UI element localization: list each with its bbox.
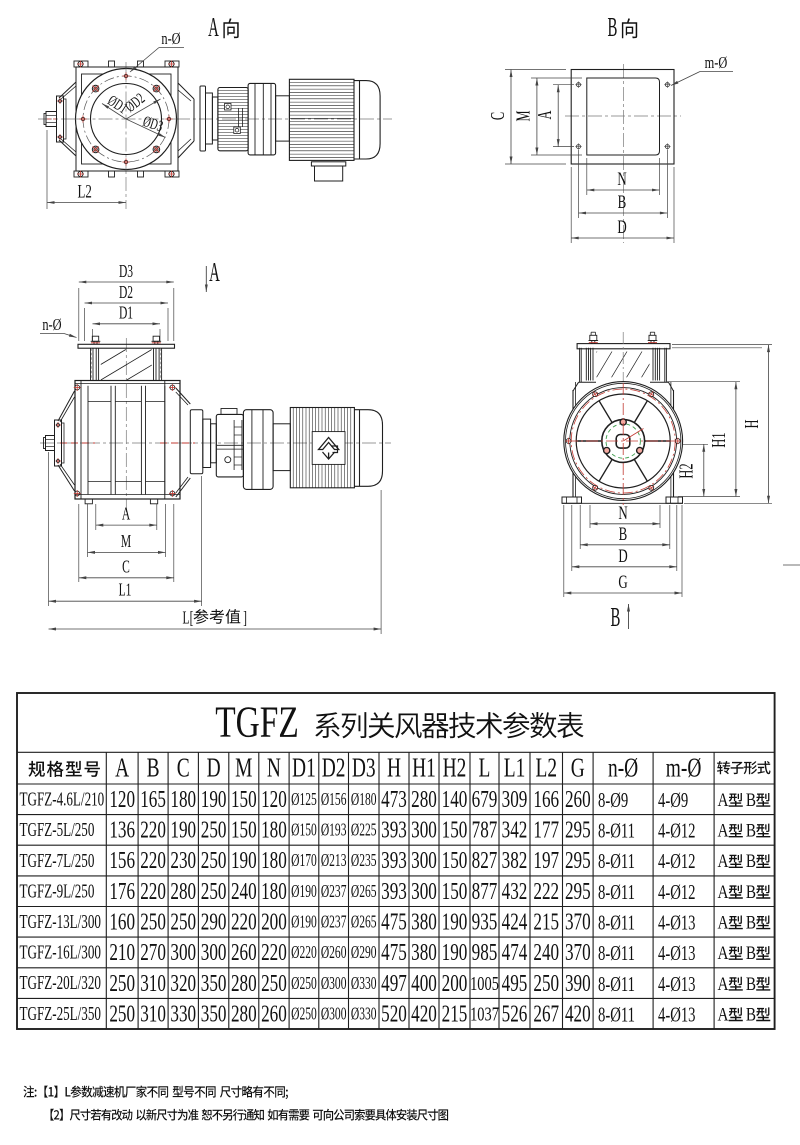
svg-text:B: B: [619, 523, 628, 544]
svg-text:200: 200: [261, 907, 287, 935]
svg-text:290: 290: [201, 907, 227, 935]
svg-text:Ø260: Ø260: [321, 944, 347, 963]
svg-text:N: N: [618, 502, 628, 523]
svg-text:]: ]: [243, 609, 247, 628]
svg-text:390: 390: [565, 969, 591, 997]
svg-text:250: 250: [201, 846, 227, 874]
svg-text:210: 210: [109, 938, 135, 966]
svg-text:Ø250: Ø250: [291, 975, 317, 994]
svg-text:935: 935: [472, 907, 498, 935]
svg-text:350: 350: [201, 999, 227, 1027]
svg-text:B: B: [608, 12, 618, 42]
svg-text:TGFZ-9L/250: TGFZ-9L/250: [19, 880, 94, 902]
svg-text:8-Ø9: 8-Ø9: [598, 788, 628, 811]
svg-text:250: 250: [109, 999, 135, 1027]
svg-text:H: H: [387, 754, 401, 784]
svg-text:Ø330: Ø330: [351, 1005, 377, 1024]
svg-text:679: 679: [472, 785, 498, 813]
svg-text:120: 120: [261, 785, 287, 813]
svg-text:8-Ø11: 8-Ø11: [598, 1003, 635, 1026]
svg-text:295: 295: [565, 877, 591, 905]
svg-text:300: 300: [411, 816, 437, 844]
svg-text:300: 300: [170, 938, 196, 966]
svg-text:D: D: [207, 754, 221, 784]
svg-text:380: 380: [411, 938, 437, 966]
svg-text:190: 190: [170, 816, 196, 844]
svg-text:370: 370: [565, 938, 591, 966]
svg-text:180: 180: [261, 877, 287, 905]
svg-text:N: N: [267, 754, 281, 784]
svg-text:8-Ø11: 8-Ø11: [598, 880, 635, 903]
svg-text:180: 180: [170, 785, 196, 813]
svg-text:n-Ø: n-Ø: [42, 316, 61, 334]
svg-text:Ø265: Ø265: [351, 913, 377, 932]
svg-text:120: 120: [109, 785, 135, 813]
svg-text:m-Ø: m-Ø: [666, 754, 702, 784]
svg-text:350: 350: [201, 969, 227, 997]
svg-text:D: D: [618, 545, 628, 566]
svg-text:474: 474: [502, 938, 528, 966]
svg-text:A: A: [208, 12, 219, 42]
svg-text:1005: 1005: [470, 971, 499, 994]
svg-text:250: 250: [201, 877, 227, 905]
svg-text:222: 222: [533, 877, 559, 905]
svg-text:270: 270: [140, 938, 166, 966]
svg-text:D1: D1: [119, 304, 133, 323]
svg-text:B: B: [147, 754, 160, 784]
svg-text:280: 280: [231, 969, 257, 997]
svg-text:Ø190: Ø190: [291, 913, 317, 932]
svg-text:M: M: [121, 533, 131, 552]
svg-text:526: 526: [502, 999, 528, 1027]
svg-text:250: 250: [201, 816, 227, 844]
svg-text:393: 393: [381, 846, 407, 874]
svg-text:150: 150: [231, 785, 257, 813]
svg-text:G: G: [618, 572, 628, 593]
svg-text:190: 190: [231, 846, 257, 874]
svg-text:393: 393: [381, 877, 407, 905]
svg-text:220: 220: [140, 877, 166, 905]
svg-text:382: 382: [502, 846, 528, 874]
svg-text:Ø330: Ø330: [351, 975, 377, 994]
svg-text:D3: D3: [352, 754, 376, 784]
svg-text:A: A: [122, 505, 131, 524]
svg-text:190: 190: [201, 785, 227, 813]
svg-text:190: 190: [442, 907, 468, 935]
svg-text:165: 165: [140, 785, 166, 813]
svg-text:4-Ø13: 4-Ø13: [658, 942, 696, 965]
svg-text:8-Ø11: 8-Ø11: [598, 911, 635, 934]
svg-text:380: 380: [411, 907, 437, 935]
svg-text:877: 877: [472, 877, 498, 905]
svg-text:432: 432: [502, 877, 528, 905]
svg-text:4-Ø13: 4-Ø13: [658, 911, 696, 934]
svg-text:Ø193: Ø193: [321, 821, 347, 840]
svg-text:370: 370: [565, 907, 591, 935]
svg-text:L2: L2: [535, 754, 557, 784]
svg-text:220: 220: [261, 938, 287, 966]
svg-text:4-Ø12: 4-Ø12: [658, 850, 696, 873]
svg-text:180: 180: [261, 816, 287, 844]
svg-text:330: 330: [170, 999, 196, 1027]
svg-text:280: 280: [170, 877, 196, 905]
svg-text:Ø250: Ø250: [291, 1005, 317, 1024]
svg-text:260: 260: [231, 938, 257, 966]
svg-text:B: B: [618, 192, 627, 213]
svg-text:Ø300: Ø300: [321, 1005, 347, 1024]
svg-text:Ø300: Ø300: [321, 975, 347, 994]
svg-text:TGFZ-5L/250: TGFZ-5L/250: [19, 818, 94, 840]
svg-text:250: 250: [170, 907, 196, 935]
svg-text:H2: H2: [443, 754, 467, 784]
svg-text:420: 420: [565, 999, 591, 1027]
svg-text:Ø180: Ø180: [351, 791, 377, 810]
svg-text:475: 475: [381, 938, 407, 966]
svg-text:4-Ø12: 4-Ø12: [658, 880, 696, 903]
svg-text:200: 200: [442, 969, 468, 997]
svg-text:8-Ø11: 8-Ø11: [598, 942, 635, 965]
svg-text:140: 140: [442, 785, 468, 813]
svg-text:240: 240: [231, 877, 257, 905]
svg-text:Ø290: Ø290: [351, 944, 377, 963]
svg-text:M: M: [235, 754, 252, 784]
svg-text:8-Ø11: 8-Ø11: [598, 819, 635, 842]
svg-text:309: 309: [502, 785, 528, 813]
svg-text:Ø125: Ø125: [291, 791, 317, 810]
svg-text:280: 280: [231, 999, 257, 1027]
svg-text:295: 295: [565, 846, 591, 874]
svg-text:Ø213: Ø213: [321, 852, 347, 871]
svg-text:B: B: [611, 602, 621, 632]
svg-text:n-Ø: n-Ø: [161, 30, 180, 48]
svg-text:473: 473: [381, 785, 407, 813]
svg-text:Ø150: Ø150: [291, 821, 317, 840]
svg-text:D1: D1: [292, 754, 316, 784]
svg-text:4-Ø13: 4-Ø13: [658, 972, 696, 995]
svg-text:N: N: [617, 169, 627, 190]
svg-text:m-Ø: m-Ø: [705, 54, 728, 72]
svg-text:215: 215: [442, 999, 468, 1027]
svg-text:H1: H1: [707, 432, 730, 447]
svg-text:TGFZ-25L/350: TGFZ-25L/350: [19, 1002, 100, 1024]
svg-text:150: 150: [442, 877, 468, 905]
svg-text:A: A: [533, 111, 556, 120]
svg-text:136: 136: [109, 816, 135, 844]
svg-text:300: 300: [411, 846, 437, 874]
svg-text:Ø237: Ø237: [321, 883, 347, 902]
svg-text:Ø235: Ø235: [351, 852, 377, 871]
svg-text:497: 497: [381, 969, 407, 997]
svg-text:A: A: [115, 754, 129, 784]
svg-text:267: 267: [533, 999, 559, 1027]
svg-text:L2: L2: [78, 181, 92, 202]
svg-text:300: 300: [201, 938, 227, 966]
svg-text:Ø156: Ø156: [321, 791, 347, 810]
svg-text:197: 197: [533, 846, 559, 874]
svg-text:400: 400: [411, 969, 437, 997]
svg-text:TGFZ-13L/300: TGFZ-13L/300: [19, 910, 100, 932]
svg-text:L: L: [479, 754, 491, 784]
svg-text:424: 424: [502, 907, 528, 935]
svg-text:TGFZ-4.6L/210: TGFZ-4.6L/210: [19, 788, 104, 810]
svg-text:150: 150: [231, 816, 257, 844]
svg-text:A: A: [209, 257, 220, 287]
svg-text:320: 320: [170, 969, 196, 997]
svg-text:TGFZ-20L/320: TGFZ-20L/320: [19, 971, 100, 993]
svg-text:Ø190: Ø190: [291, 883, 317, 902]
svg-text:D3: D3: [119, 263, 133, 282]
svg-text:250: 250: [261, 969, 287, 997]
svg-text:150: 150: [442, 846, 468, 874]
svg-text:393: 393: [381, 816, 407, 844]
svg-text:310: 310: [140, 969, 166, 997]
svg-text:Ø225: Ø225: [351, 821, 377, 840]
svg-text:160: 160: [109, 907, 135, 935]
svg-text:220: 220: [231, 907, 257, 935]
svg-text:H: H: [740, 420, 763, 429]
svg-text:L1: L1: [504, 754, 526, 784]
svg-text:Ø237: Ø237: [321, 913, 347, 932]
svg-text:215: 215: [533, 907, 559, 935]
svg-text:C: C: [177, 754, 190, 784]
svg-text:D2: D2: [322, 754, 346, 784]
svg-text:177: 177: [533, 816, 559, 844]
svg-text:342: 342: [502, 816, 528, 844]
svg-text:420: 420: [411, 999, 437, 1027]
svg-text:495: 495: [502, 969, 528, 997]
svg-text:TGFZ-16L/300: TGFZ-16L/300: [19, 941, 100, 963]
svg-text:260: 260: [565, 785, 591, 813]
svg-text:TGFZ: TGFZ: [215, 698, 299, 746]
svg-text:L1: L1: [119, 582, 132, 601]
svg-text:250: 250: [140, 907, 166, 935]
svg-text:176: 176: [109, 877, 135, 905]
svg-text:D: D: [617, 217, 627, 238]
svg-text:250: 250: [109, 969, 135, 997]
svg-text:4-Ø13: 4-Ø13: [658, 1003, 696, 1026]
svg-text:Ø170: Ø170: [291, 852, 317, 871]
svg-text:M: M: [511, 110, 534, 121]
svg-text:280: 280: [411, 785, 437, 813]
svg-text:Ø265: Ø265: [351, 883, 377, 902]
svg-text:150: 150: [442, 816, 468, 844]
svg-text:G: G: [571, 754, 585, 784]
svg-text:8-Ø11: 8-Ø11: [598, 972, 635, 995]
svg-text:220: 220: [140, 846, 166, 874]
svg-text:787: 787: [472, 816, 498, 844]
svg-text:D2: D2: [119, 284, 133, 303]
svg-text:Ø220: Ø220: [291, 944, 317, 963]
svg-text:n-Ø: n-Ø: [608, 754, 638, 784]
svg-text:1037: 1037: [470, 1002, 499, 1025]
svg-text:166: 166: [533, 785, 559, 813]
svg-text:295: 295: [565, 816, 591, 844]
svg-text:8-Ø11: 8-Ø11: [598, 850, 635, 873]
svg-text:180: 180: [261, 846, 287, 874]
svg-text:4-Ø12: 4-Ø12: [658, 819, 696, 842]
svg-text:240: 240: [533, 938, 559, 966]
svg-text:C: C: [486, 112, 509, 120]
svg-text:520: 520: [381, 999, 407, 1027]
svg-text:827: 827: [472, 846, 498, 874]
svg-text:190: 190: [442, 938, 468, 966]
svg-text:310: 310: [140, 999, 166, 1027]
svg-text:300: 300: [411, 877, 437, 905]
svg-text:475: 475: [381, 907, 407, 935]
svg-text:230: 230: [170, 846, 196, 874]
svg-text:250: 250: [533, 969, 559, 997]
svg-text:L[: L[: [183, 609, 194, 628]
svg-text:C: C: [122, 558, 130, 577]
svg-text:H2: H2: [674, 463, 697, 478]
svg-text:260: 260: [261, 999, 287, 1027]
svg-text:H1: H1: [412, 754, 436, 784]
svg-text:4-Ø9: 4-Ø9: [658, 788, 688, 811]
svg-text:220: 220: [140, 816, 166, 844]
svg-text:156: 156: [109, 846, 135, 874]
svg-text:TGFZ-7L/250: TGFZ-7L/250: [19, 849, 94, 871]
svg-text:985: 985: [472, 938, 498, 966]
